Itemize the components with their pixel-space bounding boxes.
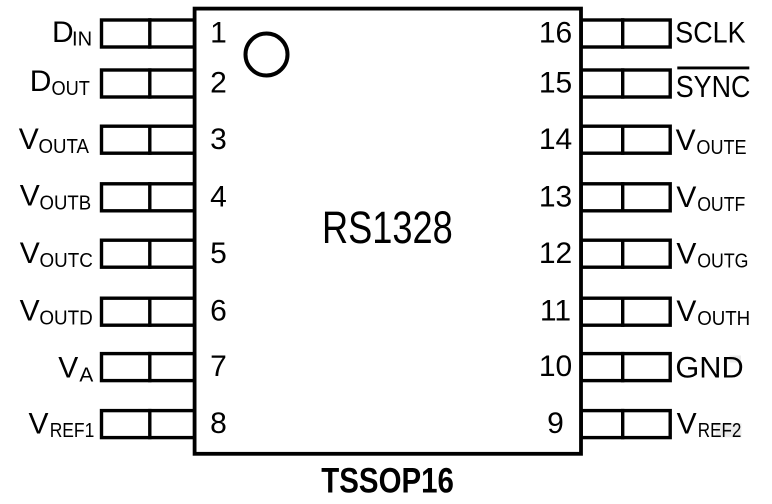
svg-text:15: 15 [539,67,572,100]
svg-text:OUTG: OUTG [697,250,748,272]
svg-text:V: V [20,295,40,328]
svg-text:16: 16 [539,17,572,50]
svg-text:OUTA: OUTA [39,136,90,158]
svg-text:12: 12 [539,237,572,270]
svg-text:V: V [20,237,40,270]
svg-text:V: V [29,407,49,440]
svg-text:SYNC: SYNC [676,69,751,104]
svg-text:V: V [676,181,696,214]
svg-text:V: V [676,238,696,271]
svg-text:1: 1 [210,17,227,50]
svg-text:REF2: REF2 [698,420,742,442]
svg-text:5: 5 [210,237,227,270]
svg-text:OUT: OUT [52,78,90,100]
svg-text:V: V [58,352,78,385]
svg-text:IN: IN [72,29,92,51]
svg-text:3: 3 [210,123,227,156]
svg-text:OUTF: OUTF [697,194,745,216]
svg-text:6: 6 [210,295,227,328]
svg-text:D: D [30,65,52,98]
svg-text:OUTH: OUTH [697,308,750,330]
svg-text:13: 13 [539,180,572,213]
svg-text:4: 4 [210,180,227,213]
svg-text:D: D [52,16,74,49]
svg-text:10: 10 [539,350,572,383]
svg-text:9: 9 [547,407,564,440]
svg-text:7: 7 [210,350,227,383]
svg-text:V: V [676,124,696,157]
svg-text:14: 14 [539,123,572,156]
svg-text:OUTC: OUTC [40,250,93,272]
svg-text:TSSOP16: TSSOP16 [321,462,454,501]
svg-text:OUTE: OUTE [696,137,746,159]
svg-text:RS1328: RS1328 [322,202,453,253]
svg-text:V: V [676,295,696,328]
svg-text:11: 11 [540,295,571,328]
svg-text:GND: GND [675,352,743,385]
svg-text:V: V [677,407,697,440]
svg-text:A: A [79,364,94,386]
svg-text:OUTB: OUTB [40,192,92,214]
svg-text:V: V [19,123,39,156]
svg-text:V: V [20,180,40,213]
svg-text:SCLK: SCLK [675,17,745,50]
svg-text:2: 2 [210,67,227,100]
svg-text:OUTD: OUTD [39,308,92,330]
svg-text:REF1: REF1 [50,420,95,442]
svg-text:8: 8 [210,407,227,440]
